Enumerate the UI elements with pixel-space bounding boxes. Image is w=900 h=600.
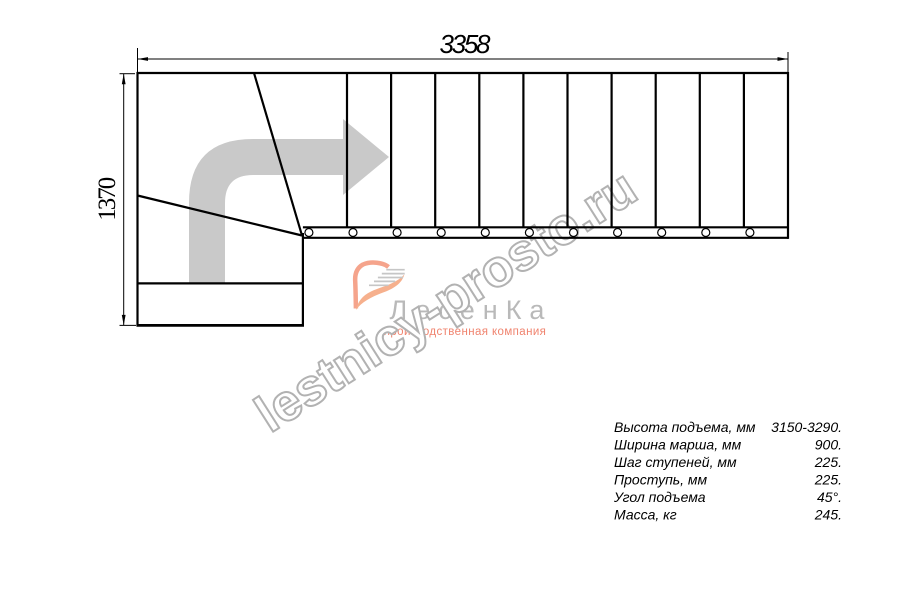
svg-text:900.: 900. [815, 437, 842, 453]
svg-text:Ширина марша, мм: Ширина марша, мм [614, 437, 742, 453]
svg-text:225.: 225. [814, 454, 842, 470]
svg-text:45°.: 45°. [817, 489, 842, 505]
svg-text:245.: 245. [814, 507, 842, 523]
svg-text:3150-3290.: 3150-3290. [771, 419, 842, 435]
svg-text:3358: 3358 [440, 29, 492, 59]
svg-text:Угол подъема: Угол подъема [613, 489, 706, 505]
svg-text:lestnicy-prosto.ru: lestnicy-prosto.ru [245, 159, 647, 444]
svg-text:Высота подъема, мм: Высота подъема, мм [614, 419, 756, 435]
svg-text:225.: 225. [814, 472, 842, 488]
svg-text:1370: 1370 [94, 177, 121, 221]
svg-text:Шаг ступеней, мм: Шаг ступеней, мм [614, 454, 737, 470]
svg-text:Масса, кг: Масса, кг [614, 507, 677, 523]
svg-text:Проступь, мм: Проступь, мм [614, 472, 708, 488]
